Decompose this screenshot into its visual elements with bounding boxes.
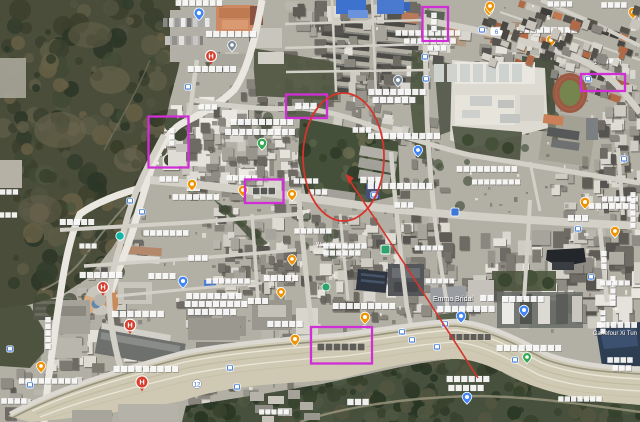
svg-text:WeiWay: WeiWay xyxy=(316,242,336,248)
svg-text:Emma Bridal: Emma Bridal xyxy=(433,296,474,303)
svg-text:Carrefour Xi Tun: Carrefour Xi Tun xyxy=(593,331,637,337)
svg-text:H: H xyxy=(100,283,105,292)
svg-text:H: H xyxy=(208,52,213,61)
svg-text:12: 12 xyxy=(194,383,201,389)
svg-text:H: H xyxy=(139,378,144,387)
svg-text:H: H xyxy=(127,321,132,330)
